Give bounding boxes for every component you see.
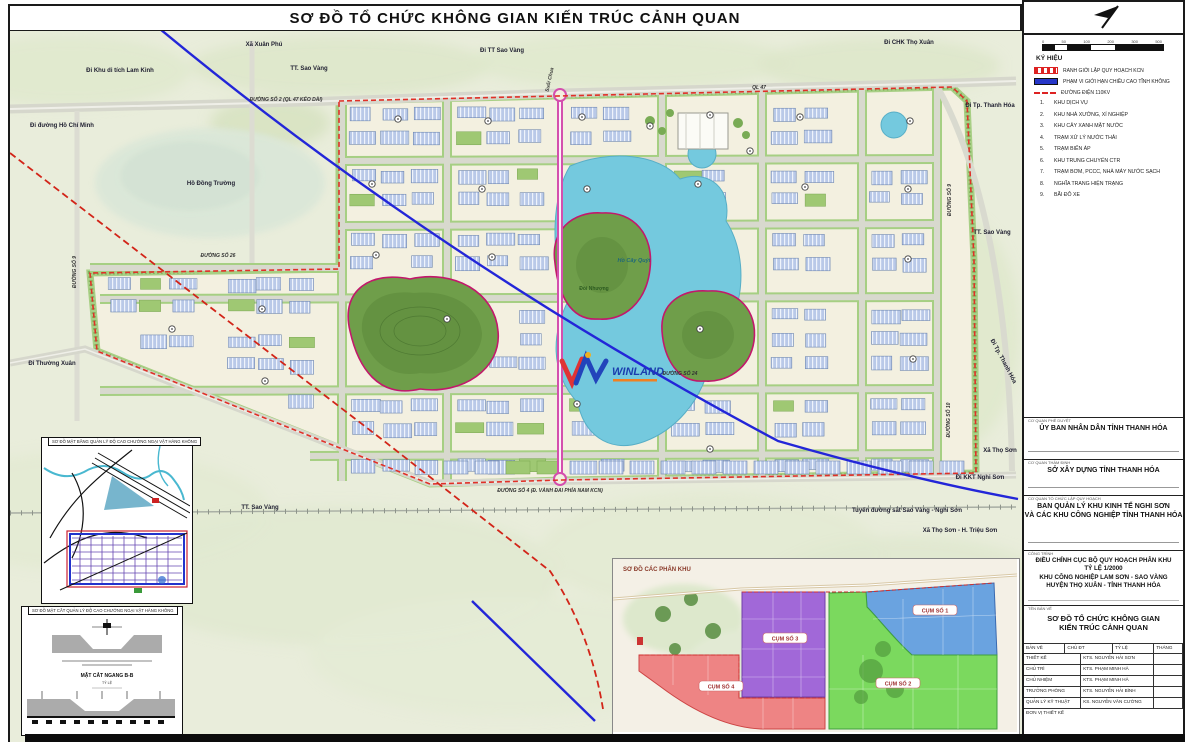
table-row: TRƯỞNG PHÒNGKTS. NGUYỄN HẢI BÌNH bbox=[1024, 686, 1183, 697]
table-header-row: BẢN VẼCHỦ ĐTTỶ LỆTHÁNG bbox=[1024, 643, 1183, 653]
aviation-section-inset: SƠ ĐỒ MẶT CẮT QUẢN LÝ ĐỘ CAO CHƯỚNG NGẠI… bbox=[21, 606, 183, 736]
table-cell: QUẢN LÝ KỸ THUẬT bbox=[1024, 698, 1081, 708]
zone-label: CỤM SỐ 3 bbox=[763, 633, 807, 643]
legend-item: 1.KHU DỊCH VỤ bbox=[1038, 100, 1182, 112]
table-cell: KTS. PHẠM MINH HÀ bbox=[1081, 676, 1154, 686]
north-arrow-icon bbox=[1024, 2, 1183, 31]
table-cell: KTS. PHẠM MINH HÀ bbox=[1081, 665, 1154, 675]
table-cell: KS. NGUYỄN VĂN CƯỜNG bbox=[1081, 698, 1154, 708]
map-label: ĐƯỜNG SỐ 4 (Đ. VÀNH ĐAI PHÍA NAM KCN) bbox=[497, 486, 603, 494]
signature-table: BẢN VẼCHỦ ĐTTỶ LỆTHÁNGTHIẾT KẾKTS. NGUYỄ… bbox=[1024, 643, 1183, 719]
legend-numbered-items: 1.KHU DỊCH VỤ2.KHU NHÀ XƯỞNG, XÍ NGHIỆP3… bbox=[1038, 100, 1182, 204]
section-line: ỦY BAN NHÂN DÂN TỈNH THANH HÓA bbox=[1024, 424, 1183, 433]
sw-boundary-swatch bbox=[1034, 67, 1058, 74]
clusters-inset: SƠ ĐỒ CÁC PHÂN KHU CỤM SỐ 1CỤM SỐ 2CỤM S… bbox=[612, 558, 1020, 736]
table-cell bbox=[1154, 665, 1183, 675]
legend-item: 9.BÃI ĐỖ XE bbox=[1038, 192, 1182, 204]
map-label: Xã Xuân Phú bbox=[246, 42, 283, 48]
page-title: SƠ ĐỒ TỔ CHỨC KHÔNG GIAN KIẾN TRÚC CẢNH … bbox=[290, 10, 741, 27]
map-label: Đi Thường Xuân bbox=[28, 361, 76, 367]
svg-text:CỤM SỐ 2: CỤM SỐ 2 bbox=[885, 681, 912, 688]
section-line: TỶ LỆ 1/2000 bbox=[1024, 565, 1183, 574]
section-line: VÀ CÁC KHU CÔNG NGHIỆP TỈNH THANH HÓA bbox=[1024, 511, 1183, 520]
legend-line-items: RANH GIỚI LẬP QUY HOẠCH KCNPHẠM VI GIỚI … bbox=[1034, 65, 1182, 98]
aviation-plan-title: SƠ ĐỒ MẶT BẰNG QUẢN LÝ ĐỘ CAO CHƯỚNG NGẠ… bbox=[48, 437, 201, 446]
svg-text:TỶ LỆ: TỶ LỆ bbox=[102, 680, 113, 685]
table-cell: CHỦ TRÌ bbox=[1024, 665, 1081, 675]
table-cell bbox=[1154, 687, 1183, 697]
drawing-name-line: SƠ ĐỒ TỔ CHỨC KHÔNG GIAN bbox=[1024, 614, 1183, 623]
north-arrow-box bbox=[1024, 2, 1183, 35]
signature-line bbox=[1028, 451, 1179, 455]
table-cell: THIẾT KẾ bbox=[1024, 654, 1081, 664]
zone-label: CỤM SỐ 4 bbox=[699, 681, 743, 691]
map-label: Xã Thọ Sơn - H. Triệu Sơn bbox=[923, 528, 998, 534]
design-unit-label: ĐƠN VỊ THIẾT KẾ bbox=[1024, 709, 1183, 719]
legend-line: ĐƯỜNG ĐIỆN 110KV bbox=[1034, 87, 1182, 98]
section-line: ĐIỀU CHỈNH CỤC BỘ QUY HOẠCH PHÂN KHU bbox=[1024, 557, 1183, 566]
clusters-drawing: SƠ ĐỒ CÁC PHÂN KHU CỤM SỐ 1CỤM SỐ 2CỤM S… bbox=[613, 559, 1017, 732]
legend-line-label: PHẠM VI GIỚI HẠN CHIỀU CAO TĨNH KHÔNG bbox=[1063, 79, 1170, 85]
drawing-sheet: SƠ ĐỒ TỔ CHỨC KHÔNG GIAN KIẾN TRÚC CẢNH … bbox=[0, 0, 1200, 742]
map-label: TT. Sao Vàng bbox=[973, 230, 1011, 236]
legend-line-label: ĐƯỜNG ĐIỆN 110KV bbox=[1061, 90, 1110, 96]
table-header-cell: BẢN VẼ bbox=[1024, 644, 1065, 653]
map-label: Tuyến đường sắt Sao Vàng - Nghi Sơn bbox=[852, 507, 962, 514]
signature-line bbox=[1028, 600, 1179, 603]
title-block-section: CƠ QUAN TỔ CHỨC LẬP QUY HOẠCHBAN QUẢN LÝ… bbox=[1024, 495, 1183, 550]
map-label: Đi Tp. Thanh Hóa bbox=[965, 103, 1015, 109]
legend-item: 7.TRẠM BƠM, PCCC, NHÀ MÁY NƯỚC SẠCH bbox=[1038, 169, 1182, 181]
table-row: CHỦ TRÌKTS. PHẠM MINH HÀ bbox=[1024, 664, 1183, 675]
table-cell: KTS. NGUYỄN HẢI BÌNH bbox=[1081, 687, 1154, 697]
legend-line-label: RANH GIỚI LẬP QUY HOẠCH KCN bbox=[1063, 68, 1144, 74]
sw-blue-swatch bbox=[1034, 78, 1058, 85]
svg-text:MẶT CẮT NGANG B-B: MẶT CẮT NGANG B-B bbox=[81, 671, 134, 679]
table-cell: TRƯỞNG PHÒNG bbox=[1024, 687, 1081, 697]
map-label: ĐƯỜNG SỐ 9 bbox=[70, 256, 78, 288]
map-label: ĐƯỜNG SỐ 9 bbox=[945, 184, 953, 216]
table-row: THIẾT KẾKTS. NGUYỄN HẢI SƠN bbox=[1024, 653, 1183, 664]
legend-item: 6.KHU TRUNG CHUYỂN CTR bbox=[1038, 158, 1182, 170]
aviation-plan-inset: SƠ ĐỒ MẶT BẰNG QUẢN LÝ ĐỘ CAO CHƯỚNG NGẠ… bbox=[41, 437, 193, 604]
legend-line: PHẠM VI GIỚI HẠN CHIỀU CAO TĨNH KHÔNG bbox=[1034, 76, 1182, 87]
map-label: TT. Sao Vàng bbox=[241, 505, 279, 511]
table-header-cell: TỶ LỆ bbox=[1113, 644, 1154, 653]
svg-text:CỤM SỐ 4: CỤM SỐ 4 bbox=[708, 684, 736, 691]
table-cell bbox=[1154, 676, 1183, 686]
title-block-section: CƠ QUAN THẨM ĐỊNHSỞ XÂY DỰNG TỈNH THANH … bbox=[1024, 459, 1183, 495]
legend-item: 4.TRẠM XỬ LÝ NƯỚC THẢI bbox=[1038, 135, 1182, 147]
legend-item: 3.KHU CÂY XANH MẶT NƯỚC bbox=[1038, 123, 1182, 135]
map-label: ĐƯỜNG SỐ 26 bbox=[201, 251, 236, 259]
aviation-section-title: SƠ ĐỒ MẶT CẮT QUẢN LÝ ĐỘ CAO CHƯỚNG NGẠI… bbox=[28, 606, 178, 615]
drawing-name-block: TÊN BẢN VẼ SƠ ĐỒ TỔ CHỨC KHÔNG GIAN KIẾN… bbox=[1024, 605, 1183, 643]
scale-bar: 050100200300500 bbox=[1042, 39, 1164, 51]
map-label: Xã Thọ Sơn bbox=[983, 448, 1017, 454]
map-label: Đi Khu di tích Lam Kinh bbox=[86, 68, 154, 74]
map-label: ĐƯỜNG SỐ 24 bbox=[663, 369, 698, 377]
signature-line bbox=[1028, 542, 1179, 546]
map-label: TT. Sao Vàng bbox=[290, 66, 328, 72]
table-header-cell: CHỦ ĐT bbox=[1065, 644, 1113, 653]
map-label: ĐƯỜNG SỐ 2 (QL 47 KÉO DÀI) bbox=[250, 95, 323, 103]
right-panel: 050100200300500 KÝ HIỆU RANH GIỚI LẬP QU… bbox=[1022, 0, 1185, 742]
signature-line bbox=[1028, 487, 1179, 491]
svg-text:CỤM SỐ 1: CỤM SỐ 1 bbox=[922, 608, 949, 615]
svg-text:WINLAND: WINLAND bbox=[612, 366, 664, 378]
bottom-black-bar bbox=[25, 734, 1185, 742]
table-cell bbox=[1154, 654, 1183, 664]
map-label: Hồ Đồng Trường bbox=[187, 181, 236, 187]
drawing-name-heading: TÊN BẢN VẼ bbox=[1024, 606, 1183, 612]
map-label: Đi KKT Nghi Sơn bbox=[956, 475, 1005, 481]
table-cell bbox=[1154, 698, 1183, 708]
map-label: Đi đường Hồ Chí Minh bbox=[30, 123, 94, 129]
svg-text:SƠ ĐỒ CÁC PHÂN KHU: SƠ ĐỒ CÁC PHÂN KHU bbox=[623, 566, 691, 573]
map-label: Đi CHK Thọ Xuân bbox=[884, 40, 934, 46]
table-header-cell: THÁNG bbox=[1154, 644, 1183, 653]
map-label: QL 47 bbox=[752, 85, 766, 91]
title-bar: SƠ ĐỒ TỔ CHỨC KHÔNG GIAN KIẾN TRÚC CẢNH … bbox=[8, 4, 1022, 32]
section-line: BAN QUẢN LÝ KHU KINH TẾ NGHI SƠN bbox=[1024, 502, 1183, 511]
legend-item: 2.KHU NHÀ XƯỞNG, XÍ NGHIỆP bbox=[1038, 112, 1182, 124]
drawing-name-line: KIẾN TRÚC CẢNH QUAN bbox=[1024, 623, 1183, 632]
section-line: SỞ XÂY DỰNG TỈNH THANH HÓA bbox=[1024, 466, 1183, 475]
map-label: Hồ Cây Quýt bbox=[617, 258, 651, 264]
title-block-section: CƠ QUAN PHÊ DUYỆTỦY BAN NHÂN DÂN TỈNH TH… bbox=[1024, 417, 1183, 459]
map-label: ĐƯỜNG SỐ 10 bbox=[944, 402, 952, 437]
table-row: CHỦ NHIỆMKTS. PHẠM MINH HÀ bbox=[1024, 675, 1183, 686]
sw-110kv-swatch bbox=[1034, 92, 1056, 94]
table-cell: KTS. NGUYỄN HẢI SƠN bbox=[1081, 654, 1154, 664]
section-line: KHU CÔNG NGHIỆP LAM SƠN - SAO VÀNG bbox=[1024, 574, 1183, 583]
table-row: QUẢN LÝ KỸ THUẬTKS. NGUYỄN VĂN CƯỜNG bbox=[1024, 697, 1183, 708]
legend-line: RANH GIỚI LẬP QUY HOẠCH KCN bbox=[1034, 65, 1182, 76]
table-footer-row: ĐƠN VỊ THIẾT KẾ bbox=[1024, 708, 1183, 719]
title-block-section: CÔNG TRÌNHĐIỀU CHỈNH CỤC BỘ QUY HOẠCH PH… bbox=[1024, 550, 1183, 605]
table-cell: CHỦ NHIỆM bbox=[1024, 676, 1081, 686]
svg-text:CỤM SỐ 3: CỤM SỐ 3 bbox=[772, 636, 799, 643]
aviation-plan-drawing bbox=[42, 438, 190, 600]
map-label: Đi TT Sao Vàng bbox=[480, 48, 524, 54]
legend-heading: KÝ HIỆU bbox=[1036, 55, 1062, 62]
zone-label: CỤM SỐ 2 bbox=[876, 678, 920, 688]
legend-item: 8.NGHĨA TRANG HIỆN TRẠNG bbox=[1038, 181, 1182, 193]
aviation-section-drawing: MẶT CẮT NGANG B-B TỶ LỆ bbox=[22, 607, 180, 732]
legend-item: 5.TRẠM BIẾN ÁP bbox=[1038, 146, 1182, 158]
map-label: Đồi Nhượng bbox=[579, 286, 608, 292]
zone-label: CỤM SỐ 1 bbox=[913, 605, 957, 615]
section-line: HUYỆN THỌ XUÂN - TỈNH THANH HÓA bbox=[1024, 582, 1183, 591]
